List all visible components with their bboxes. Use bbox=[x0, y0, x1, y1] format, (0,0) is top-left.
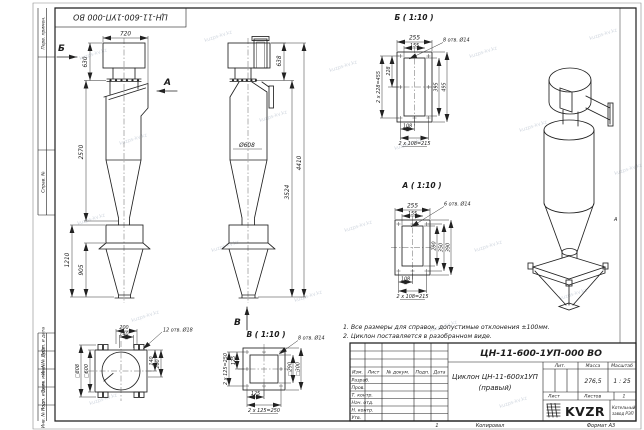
detail-b-holes-callout: 8 отв. Ø14 bbox=[443, 37, 470, 44]
listov-label: Листов bbox=[583, 394, 601, 400]
col-doc: № докум. bbox=[386, 370, 410, 376]
watermark-text: kuzps-kv.kz bbox=[131, 309, 161, 324]
title-name-line2: (правый) bbox=[479, 384, 512, 392]
logo-subtext-2: завод РЭП bbox=[612, 411, 634, 416]
footer-format: Формат А3 bbox=[587, 423, 615, 429]
title-doc-number: ЦН-11-600-1УП-000 ВО bbox=[480, 348, 602, 359]
col-data: Дата bbox=[433, 370, 446, 376]
dim-label-b-255: 255 bbox=[409, 36, 420, 42]
dim-label-b-495: 495 bbox=[442, 82, 448, 91]
dim-label-b-155: 155 bbox=[410, 43, 419, 49]
dim-label-638: 638 bbox=[277, 55, 283, 66]
watermark-text: kuzps-kv.kz bbox=[204, 29, 234, 44]
row-razrab: Разраб. bbox=[352, 378, 370, 384]
dim-label-v-250l: 2 x 125=250 bbox=[223, 353, 229, 385]
footer-copied: Копировал bbox=[476, 423, 505, 429]
row-utv: Утв. bbox=[352, 415, 362, 421]
watermark-text: kuzps-kv.kz bbox=[329, 59, 359, 74]
detail-b-title: Б ( 1:10 ) bbox=[394, 13, 433, 22]
isometric-view bbox=[528, 68, 613, 310]
dim-label-b-215: 2 x 108=215 bbox=[399, 141, 431, 147]
dim-label-720: 720 bbox=[120, 32, 131, 38]
dim-label-1210: 1210 bbox=[65, 252, 71, 267]
frame-label-perv-primen: Перв. примен. bbox=[41, 17, 47, 50]
watermark-text: kuzps-kv.kz bbox=[474, 239, 504, 254]
dim-label-630: 630 bbox=[83, 56, 89, 67]
dim-label-top-sq600: □600 bbox=[84, 364, 90, 378]
row-nkontr: Н. контр. bbox=[352, 408, 374, 414]
detail-a-dimensions: 255 155 290 350 390 108 2 x 108=215 6 от… bbox=[395, 201, 471, 301]
col-izm: Изм. bbox=[352, 370, 363, 376]
top-view bbox=[88, 341, 154, 401]
frame-label-sprav: Справ. № bbox=[41, 171, 47, 193]
sheet-footer: 1 Копировал Формат А3 bbox=[435, 423, 615, 429]
spring-icon bbox=[547, 404, 560, 418]
zone-letter: А bbox=[613, 217, 618, 223]
note-line-2: 2. Циклон поставляется в разобранном вид… bbox=[343, 332, 492, 340]
masshtab-value: 1 : 25 bbox=[613, 378, 630, 385]
dim-label-a-155: 155 bbox=[408, 211, 417, 217]
dim-label-b-455: 2 x 228=455 bbox=[376, 71, 382, 103]
view-arrow-label-b: Б bbox=[58, 44, 65, 54]
col-podp: Подп. bbox=[416, 370, 430, 376]
company-logo: KVZR Котельный завод РЭП bbox=[547, 404, 636, 420]
dim-label-top-200r: 200 bbox=[155, 359, 161, 368]
watermark-text: kuzps-kv.kz bbox=[259, 109, 289, 124]
dim-label-3524: 3524 bbox=[285, 184, 291, 199]
notes: 1. Все размеры для справок, допустимые о… bbox=[343, 324, 550, 340]
dim-label-top-sq808: □808 bbox=[75, 364, 81, 378]
dim-label-v-sq300: □300 bbox=[296, 362, 302, 376]
top-view-dimensions: 200 140 12 отв. Ø18 □808 □600 140 200 bbox=[75, 325, 193, 397]
row-prov: Пров. bbox=[352, 385, 365, 391]
detail-v-holes-callout: 8 отв. Ø14 bbox=[298, 335, 325, 342]
row-nachotd: Нач. отд. bbox=[352, 400, 374, 406]
watermark-text: kuzps-kv.kz bbox=[614, 162, 644, 177]
frame-label-inv-podl: Инв. № подл. bbox=[41, 398, 47, 428]
dim-label-b-228: 228 bbox=[386, 66, 392, 75]
detail-b-view: Б ( 1:10 ) bbox=[392, 13, 437, 127]
view-arrow-label-v: В bbox=[234, 318, 241, 328]
dim-label-v-sq290: □290 bbox=[288, 362, 294, 376]
dim-label-4410: 4410 bbox=[297, 155, 303, 170]
dim-label-a-108: 108 bbox=[401, 277, 410, 283]
footer-zone: 1 bbox=[435, 423, 438, 429]
row-tkontr: Т. контр. bbox=[352, 393, 373, 399]
dim-label-top-140: 140 bbox=[119, 332, 128, 338]
dim-label-diameter-608: Ø608 bbox=[238, 142, 255, 149]
dim-label-a-350: 350 bbox=[439, 243, 445, 252]
detail-v-title: В ( 1:10 ) bbox=[246, 330, 285, 339]
dim-label-a-290: 290 bbox=[432, 241, 438, 250]
listov-value: 1 bbox=[623, 394, 626, 400]
detail-a-title: А ( 1:10 ) bbox=[401, 181, 441, 190]
front-view-dimensions: 720 630 2570 1210 905 Б А bbox=[57, 32, 177, 298]
dim-label-b-108: 108 bbox=[403, 124, 412, 130]
dim-label-a-215: 2 x 108=215 bbox=[397, 294, 429, 300]
watermark-text: kuzps-kv.kz bbox=[559, 287, 589, 302]
watermark-text: kuzps-kv.kz bbox=[77, 212, 107, 227]
dim-label-2570: 2570 bbox=[79, 144, 85, 159]
side-view: Ø608 bbox=[222, 37, 275, 304]
dim-label-v-250b: 2 x 125=250 bbox=[248, 408, 280, 414]
drawing-sheet: kuzps-kv.kz kuzps-kv.kz kuzps-kv.kz kuzp… bbox=[0, 0, 644, 430]
front-view bbox=[99, 38, 150, 303]
dim-label-a-390: 390 bbox=[446, 243, 452, 252]
detail-v-dimensions: 125 2 x 125=250 □290 □300 125 2 x 125=25… bbox=[223, 335, 325, 415]
massa-value: 276,5 bbox=[584, 378, 601, 385]
detail-a-holes-callout: 6 отв. Ø14 bbox=[444, 201, 471, 208]
detail-b-dimensions: 255 155 228 2 x 228=455 395 495 108 2 x … bbox=[376, 36, 470, 148]
title-name-line1: Циклон ЦН-11-600х1УП bbox=[452, 373, 539, 381]
dim-label-top-200: 200 bbox=[119, 325, 128, 331]
dim-label-905: 905 bbox=[79, 264, 85, 275]
col-list: Лист bbox=[367, 370, 380, 376]
watermark-text: kuzps-kv.kz bbox=[589, 27, 619, 42]
watermark-text: kuzps-kv.kz bbox=[119, 132, 149, 147]
dim-label-v-125b: 125 bbox=[251, 391, 260, 397]
watermark-text: kuzps-kv.kz bbox=[211, 239, 241, 254]
massa-label: Масса bbox=[586, 363, 601, 369]
cyclone-drawing: kuzps-kv.kz kuzps-kv.kz kuzps-kv.kz kuzp… bbox=[0, 0, 644, 430]
watermark-text: kuzps-kv.kz bbox=[294, 289, 324, 304]
lit-label: Лит. bbox=[554, 363, 566, 369]
watermark-text: kuzps-kv.kz bbox=[344, 219, 374, 234]
top-view-holes-callout: 12 отв. Ø18 bbox=[163, 327, 193, 334]
title-block: ЦН-11-600-1УП-000 ВО Циклон ЦН-11-600х1У… bbox=[350, 343, 636, 421]
dim-label-v-125l: 125 bbox=[231, 356, 237, 365]
stamp-doc-number: ЦН-11-600-1УП-000 ВО bbox=[73, 13, 168, 22]
note-line-1: 1. Все размеры для справок, допустимые о… bbox=[343, 324, 550, 331]
list-label: Лист bbox=[547, 394, 560, 400]
dim-label-a-255: 255 bbox=[407, 204, 418, 210]
logo-text: KVZR bbox=[565, 404, 605, 419]
watermark-text: kuzps-kv.kz bbox=[499, 395, 529, 410]
logo-subtext-1: Котельный bbox=[612, 405, 636, 410]
masshtab-label: Масштаб bbox=[611, 363, 633, 369]
watermark-text: kuzps-kv.kz bbox=[469, 45, 499, 60]
view-arrow-label-a: А bbox=[163, 78, 171, 88]
dim-label-b-395: 395 bbox=[434, 82, 440, 91]
